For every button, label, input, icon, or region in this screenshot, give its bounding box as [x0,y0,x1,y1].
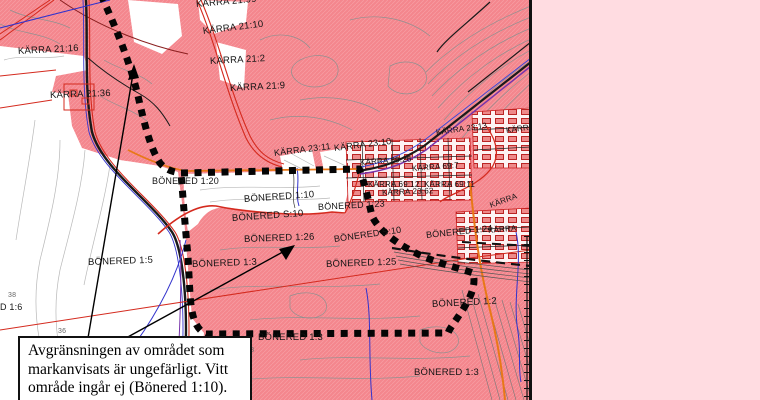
note-line: område ingår ej (Bönered 1:10). [28,379,243,398]
note-line: Avgränsningen av området som [28,342,243,361]
note-arrow-right [126,245,295,338]
note-line: markanvisats är ungefärligt. Vitt [28,361,243,380]
note-arrow-left [88,64,139,338]
note-box: Avgränsningen av området som markanvisat… [18,336,252,400]
map: KÄRRA 21:16KÄRRA 21:36KÄRRA 21:99KÄRRA 2… [0,0,531,400]
side-panel [532,0,760,400]
